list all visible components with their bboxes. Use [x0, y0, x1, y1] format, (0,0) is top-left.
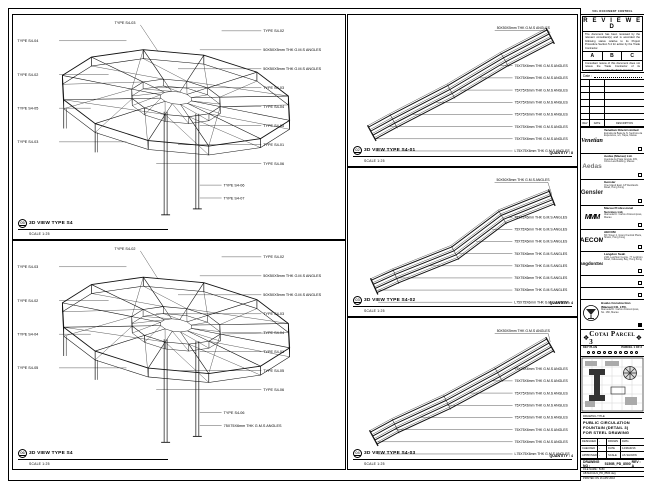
- viewport-3d-view-type-s4-top: TYPE S4-03TYPE S4-0250X50X5mm THK G.M.S …: [12, 14, 346, 240]
- viewport-3d-view-type-s4-01: 50X50X5mm THK G.M.S ANGLES75X75X6mm THK …: [347, 14, 578, 167]
- view-bubble-icon: 03: [353, 296, 362, 305]
- svg-text:50X50X5mm THK G.M.S ANGLES: 50X50X5mm THK G.M.S ANGLES: [263, 274, 321, 278]
- project-name: Cotai Parcel 3: [589, 330, 635, 346]
- field-cell: CHECKED: [581, 446, 598, 453]
- field-cell: APPROVED: [581, 452, 598, 459]
- review-stamp-disclaimer: Consultant review of this document does …: [583, 61, 642, 73]
- drawing-title-block: DRAWING TITLE PUBLIC CIRCULATION FOUNTAI…: [581, 413, 644, 439]
- svg-text:75X75X6mm THK G.M.S ANGLES: 75X75X6mm THK G.M.S ANGLES: [514, 276, 568, 280]
- svg-text:TYPE S4-06: TYPE S4-06: [263, 162, 284, 166]
- svg-text:TYPE S4-04: TYPE S4-04: [17, 39, 38, 43]
- svg-text:75X75X6mm THK G.M.S ANGLES: 75X75X6mm THK G.M.S ANGLES: [514, 228, 568, 232]
- rev-table-cell: DESCRIPTION: [605, 120, 644, 127]
- svg-text:75X75X6mm THK G.M.S ANGLES: 75X75X6mm THK G.M.S ANGLES: [515, 113, 569, 117]
- beam-assembly-drawing: 50X50X5mm THK G.M.S ANGLES75X75X6mm THK …: [348, 168, 577, 316]
- field-cell: AS SHOWN: [621, 452, 644, 459]
- svg-text:TYPE S4-04: TYPE S4-04: [17, 332, 38, 336]
- svg-text:75X75X6mm THK G.M.S ANGLES: 75X75X6mm THK G.M.S ANGLES: [515, 440, 569, 444]
- svg-text:TYPE S4-06: TYPE S4-06: [224, 183, 245, 187]
- svg-text:50X50X5mm THK G.M.S ANGLES: 50X50X5mm THK G.M.S ANGLES: [263, 67, 321, 71]
- revision-table: REVDATEDESCRIPTION: [581, 80, 644, 128]
- rev-table-cell: [605, 114, 644, 121]
- consultant-address: Shatin, Hong Kong: [604, 237, 643, 240]
- svg-text:TYPE S4-02: TYPE S4-02: [17, 299, 38, 303]
- rev-table-cell: [590, 80, 605, 87]
- view-scale: SCALE 1:25: [29, 232, 50, 236]
- view-bubble-icon: 04: [353, 449, 362, 458]
- svg-text:TYPE S4-01: TYPE S4-01: [263, 350, 284, 354]
- svg-text:75X75X6mm THK G.M.S ANGLES: 75X75X6mm THK G.M.S ANGLES: [224, 424, 282, 428]
- svg-text:TYPE S4-06: TYPE S4-06: [263, 388, 284, 392]
- checkbox: [638, 199, 643, 204]
- svg-text:50X50X5mm THK G.M.S ANGLES: 50X50X5mm THK G.M.S ANGLES: [497, 178, 551, 182]
- rev-table-cell: [605, 87, 644, 94]
- svg-text:75X75X6mm THK G.M.S ANGLES: 75X75X6mm THK G.M.S ANGLES: [514, 288, 568, 292]
- beam-assembly-drawing: 50X50X5mm THK G.M.S ANGLES75X75X6mm THK …: [348, 318, 577, 469]
- svg-text:75X75X6mm THK G.M.S ANGLES: 75X75X6mm THK G.M.S ANGLES: [514, 240, 568, 244]
- svg-text:TYPE S4-06: TYPE S4-06: [224, 411, 245, 415]
- file-info-row: PRINTED ON 16 APR 2016: [581, 477, 644, 480]
- canopy-wireframe-drawing: TYPE S4-02TYPE S4-0250X50X5mm THK G.M.S …: [13, 241, 345, 469]
- consultant-logo: LangdonSeah: [581, 252, 603, 275]
- svg-text:75X75X6mm THK G.M.S ANGLES: 75X75X6mm THK G.M.S ANGLES: [515, 428, 569, 432]
- beam-assembly-drawing: 50X50X5mm THK G.M.S ANGLES75X75X6mm THK …: [348, 15, 577, 166]
- consultant-address: Esperanca, s/n, Taipa, Macau: [604, 135, 643, 138]
- viewport-3d-view-type-s4-bottom: TYPE S4-02TYPE S4-0250X50X5mm THK G.M.S …: [12, 240, 346, 470]
- view-quantity: QUANTITY : 4: [550, 454, 574, 458]
- rev-table-cell: REV: [581, 120, 590, 127]
- contractor-logo-icon: [582, 301, 600, 325]
- view-bubble-icon: 05: [18, 219, 27, 228]
- consultant-row-gensler: GenslerGenslerOne Island East, 18 Westla…: [581, 180, 644, 206]
- consultant-address: Macau: [604, 217, 643, 220]
- svg-text:TYPE S4-03: TYPE S4-03: [263, 86, 284, 90]
- rev-table-cell: [581, 107, 590, 114]
- rev-table-cell: [590, 114, 605, 121]
- svg-text:TYPE S4-07: TYPE S4-07: [224, 196, 245, 200]
- drawing-no-label: DRAWING NO :: [583, 460, 604, 468]
- consultant-logo: [581, 288, 603, 299]
- drawing-title-label: DRAWING TITLE: [583, 414, 642, 419]
- grade-c: C: [622, 52, 642, 60]
- svg-text:TYPE S4-05: TYPE S4-05: [17, 366, 38, 370]
- svg-text:50X50X5mm THK G.M.S ANGLES: 50X50X5mm THK G.M.S ANGLES: [497, 26, 551, 30]
- view-scale: SCALE 1:25: [29, 462, 50, 466]
- viewport-3d-view-type-s4-03: 50X50X5mm THK G.M.S ANGLES75X75X6mm THK …: [347, 317, 578, 470]
- svg-text:TYPE S4-03: TYPE S4-03: [17, 265, 38, 269]
- consultant-logo: [581, 276, 603, 287]
- consultant-row-langdon-seah: LangdonSeahLangdon Seah2101 Leighton Cen…: [581, 252, 644, 276]
- consultant-address: Road, Hong Kong: [604, 187, 643, 190]
- svg-text:TYPE S4-03: TYPE S4-03: [263, 312, 284, 316]
- view-title-text: 3D VIEW TYPE S4: [29, 451, 73, 456]
- view-title: 04 3D VIEW TYPE S4-03: [353, 449, 572, 460]
- consultant-logo: MMM: [581, 206, 603, 229]
- consultant-row-blank: [581, 288, 644, 300]
- svg-text:TYPE S4-05: TYPE S4-05: [263, 124, 284, 128]
- svg-text:75X75X6mm THK G.M.S ANGLES: 75X75X6mm THK G.M.S ANGLES: [515, 137, 569, 141]
- rev-table-cell: [581, 80, 590, 87]
- field-cell: -: [598, 439, 607, 446]
- key-plan-label: KEY PLAN: [583, 346, 597, 350]
- view-bubble-icon: 06: [18, 449, 27, 458]
- svg-text:50X50X5mm THK G.M.S ANGLES: 50X50X5mm THK G.M.S ANGLES: [263, 293, 321, 297]
- view-bubble-icon: 02: [353, 146, 362, 155]
- rev-table-cell: [605, 107, 644, 114]
- svg-text:75X75X6mm THK G.M.S ANGLES: 75X75X6mm THK G.M.S ANGLES: [515, 76, 569, 80]
- checkbox: [638, 269, 643, 274]
- field-cell: SCALE: [607, 452, 621, 459]
- key-plan-map: [581, 357, 644, 413]
- consultant-logo: AECOM: [581, 230, 603, 251]
- consultant-list: VenetianVenetian Orient LimitedEstrada d…: [581, 128, 644, 300]
- consultant-address: Road, Causeway Bay, Hong Kong: [604, 259, 643, 262]
- view-title: 06 3D VIEW TYPE S4: [18, 449, 168, 460]
- svg-text:75X75X6mm THK G.M.S ANGLES: 75X75X6mm THK G.M.S ANGLES: [515, 64, 569, 68]
- field-cell: DRAWN: [607, 439, 621, 446]
- consultant-address: China Law Building, Macau: [604, 161, 643, 164]
- svg-text:75X75X6mm THK G.M.S ANGLES: 75X75X6mm THK G.M.S ANGLES: [514, 216, 568, 220]
- contractor-checkbox: [638, 323, 643, 328]
- rev-table-cell: DATE: [590, 120, 605, 127]
- stamp-top-note: VOL DOCUMENT CONTROL: [581, 8, 644, 15]
- view-scale: SCALE 1:25: [364, 462, 385, 466]
- svg-text:75X75X6mm THK G.M.S ANGLES: 75X75X6mm THK G.M.S ANGLES: [515, 367, 569, 371]
- project-banner: ❖ Cotai Parcel 3 ❖: [581, 330, 644, 346]
- rev-table-cell: [605, 93, 644, 100]
- grid-bubble-icons: [581, 350, 644, 355]
- svg-text:TYPE S4-03: TYPE S4-03: [17, 140, 38, 144]
- svg-text:TYPE S4-04: TYPE S4-04: [263, 105, 284, 109]
- consultant-row-aecom: AECOMAECOM8/F Tower 2, Grand Central Pla…: [581, 230, 644, 252]
- consultant-logo: Venetian: [581, 128, 603, 153]
- svg-text:TYPE S4-02: TYPE S4-02: [263, 29, 284, 33]
- svg-text:TYPE S4-04: TYPE S4-04: [263, 331, 284, 335]
- svg-text:TYPE S4-02: TYPE S4-02: [115, 247, 136, 251]
- svg-text:75X75X6mm THK G.M.S ANGLES: 75X75X6mm THK G.M.S ANGLES: [515, 100, 569, 104]
- checkbox: [638, 281, 643, 286]
- checkbox: [638, 173, 643, 178]
- rev-table-cell: [605, 100, 644, 107]
- review-stamp: R E V I E W E D The document has been re…: [581, 15, 644, 73]
- key-plan-strip: KEY PLAN PARCEL 1 OF 3: [581, 346, 644, 357]
- rev-table-cell: [581, 87, 590, 94]
- svg-text:75X75X6mm THK G.M.S ANGLES: 75X75X6mm THK G.M.S ANGLES: [515, 416, 569, 420]
- grade-a: A: [583, 52, 603, 60]
- field-cell: -: [598, 452, 607, 459]
- view-scale: SCALE 1:25: [364, 309, 385, 313]
- drawing-number-row: DRAWING NO : 5150B_PD_8500 REV : A: [581, 460, 644, 468]
- consultant-logo: Gensler: [581, 180, 603, 205]
- grade-b: B: [603, 52, 623, 60]
- svg-text:50X50X5mm THK G.M.S ANGLES: 50X50X5mm THK G.M.S ANGLES: [263, 48, 321, 52]
- consultant-row-macau-professional-services-ltd-: MMMMacau Professional Services Ltd.Alame…: [581, 206, 644, 230]
- svg-text:TYPE S4-01: TYPE S4-01: [263, 143, 284, 147]
- rev-table-cell: [581, 114, 590, 121]
- rev-table-cell: [590, 100, 605, 107]
- field-cell: DWG: [621, 439, 644, 446]
- date-label: Date :: [583, 74, 592, 78]
- rev-table-cell: [590, 93, 605, 100]
- rev-table-cell: [605, 80, 644, 87]
- checkbox: [638, 223, 643, 228]
- view-title-text: 3D VIEW TYPE S4-02: [364, 298, 415, 303]
- view-title: 03 3D VIEW TYPE S4-02: [353, 296, 572, 307]
- view-quantity: QUANTITY : 4: [550, 301, 574, 305]
- viewport-3d-view-type-s4-02: 50X50X5mm THK G.M.S ANGLES75X75X6mm THK …: [347, 167, 578, 317]
- consultant-row-blank: [581, 276, 644, 288]
- view-title-text: 3D VIEW TYPE S4-03: [364, 451, 415, 456]
- review-grade-row: A B C: [583, 51, 642, 61]
- view-title: 02 3D VIEW TYPE S4-01: [353, 146, 572, 157]
- consultant-row-aedas-macau-ltd-: AedasAedas (Macau) Ltd.Avenida da Praia …: [581, 154, 644, 180]
- view-scale: SCALE 1:25: [364, 159, 385, 163]
- review-stamp-body: The document has been reviewed by the re…: [583, 32, 642, 51]
- drawing-sheet: TYPE S4-03TYPE S4-0250X50X5mm THK G.M.S …: [0, 0, 650, 488]
- field-cell: -: [598, 446, 607, 453]
- date-fill-line: [594, 74, 642, 78]
- svg-text:75X75X6mm THK G.M.S ANGLES: 75X75X6mm THK G.M.S ANGLES: [514, 264, 568, 268]
- field-cell: DESIGNED: [581, 439, 598, 446]
- view-title: 05 3D VIEW TYPE S4: [18, 219, 168, 230]
- rev-table-cell: [590, 107, 605, 114]
- checkbox: [638, 147, 643, 152]
- view-title-text: 3D VIEW TYPE S4: [29, 221, 73, 226]
- drawing-title-line: FOR STEEL DRAWING: [583, 430, 642, 435]
- svg-text:75X75X6mm THK G.M.S ANGLES: 75X75X6mm THK G.M.S ANGLES: [515, 391, 569, 395]
- svg-text:TYPE S4-05: TYPE S4-05: [263, 369, 284, 373]
- checkbox: [638, 293, 643, 298]
- drawing-no-value: 5150B_PD_8500: [605, 462, 631, 466]
- svg-text:75X75X6mm THK G.M.S ANGLES: 75X75X6mm THK G.M.S ANGLES: [515, 379, 569, 383]
- parcel-label: PARCEL 1 OF 3: [621, 346, 642, 350]
- contractor-block: Hsabo Construction (Macau) CO. LTD. Alam…: [581, 300, 644, 330]
- svg-text:TYPE S4-05: TYPE S4-05: [17, 106, 38, 110]
- rev-table-cell: [581, 93, 590, 100]
- view-title-text: 3D VIEW TYPE S4-01: [364, 148, 415, 153]
- svg-text:TYPE S4-02: TYPE S4-02: [263, 255, 284, 259]
- canopy-wireframe-drawing: TYPE S4-03TYPE S4-0250X50X5mm THK G.M.S …: [13, 15, 345, 239]
- title-block-column: VOL DOCUMENT CONTROL R E V I E W E D The…: [580, 8, 644, 481]
- svg-text:TYPE S4-03: TYPE S4-03: [115, 21, 136, 25]
- svg-text:75X75X6mm THK G.M.S ANGLES: 75X75X6mm THK G.M.S ANGLES: [515, 125, 569, 129]
- stamp-date-row: Date :: [581, 73, 644, 80]
- field-cell: DATE: [607, 446, 621, 453]
- consultant-logo: Aedas: [581, 154, 603, 179]
- consultant-row-venetian-orient-limited: VenetianVenetian Orient LimitedEstrada d…: [581, 128, 644, 154]
- file-info-rows: FILE NAME : 5150AB MACAU1_PD_8500.dwgPRI…: [581, 468, 644, 480]
- svg-text:50X50X5mm THK G.M.S ANGLES: 50X50X5mm THK G.M.S ANGLES: [497, 329, 551, 333]
- svg-text:TYPE S4-02: TYPE S4-02: [17, 73, 38, 77]
- rev-table-cell: [581, 100, 590, 107]
- svg-text:75X75X6mm THK G.M.S ANGLES: 75X75X6mm THK G.M.S ANGLES: [515, 88, 569, 92]
- field-cell: 14/MAR/16: [621, 446, 644, 453]
- svg-text:75X75X6mm THK G.M.S ANGLES: 75X75X6mm THK G.M.S ANGLES: [514, 252, 568, 256]
- checkbox: [638, 245, 643, 250]
- svg-text:75X75X6mm THK G.M.S ANGLES: 75X75X6mm THK G.M.S ANGLES: [515, 403, 569, 407]
- revision-value: REV : A: [632, 460, 642, 468]
- signoff-fields-table: DESIGNED-DRAWNDWGCHECKED-DATE14/MAR/16AP…: [581, 439, 644, 460]
- key-plan-graphic: [581, 357, 644, 412]
- rev-table-cell: [590, 87, 605, 94]
- banner-ornament-icon: ❖: [636, 334, 642, 342]
- view-quantity: QUANTITY : 8: [550, 151, 574, 155]
- contractor-address: No. 180, Macau: [601, 312, 642, 315]
- review-stamp-heading: R E V I E W E D: [583, 17, 642, 32]
